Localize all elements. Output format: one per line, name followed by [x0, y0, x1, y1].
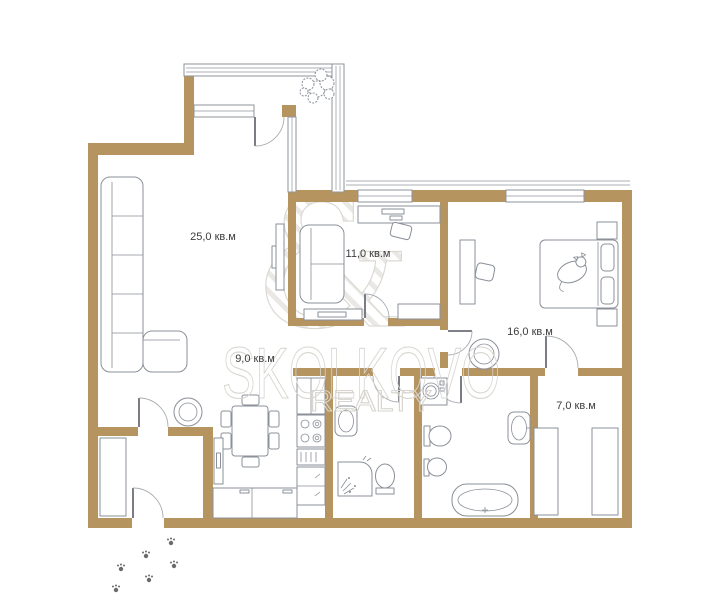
- desk-chair: [475, 262, 496, 281]
- hall-wardrobe: [100, 438, 126, 516]
- round-armchair: [174, 398, 202, 426]
- office-sofa: [300, 225, 344, 303]
- floor-plan-canvas: &: [0, 0, 720, 600]
- bedroom-area-label: 16,0 кв.м: [507, 326, 553, 338]
- wc-toilet: [376, 464, 395, 494]
- bathroom-toilet: [424, 426, 451, 446]
- watermark-division: REALTY: [310, 385, 432, 418]
- kitchen-radiator: [214, 438, 223, 484]
- bidet: [424, 458, 447, 476]
- dressing-room-area-label: 7,0 кв.м: [556, 400, 596, 412]
- hallway-furniture: [100, 438, 126, 516]
- stove: [297, 415, 325, 447]
- chair: [242, 457, 259, 467]
- bathtub: [452, 484, 518, 516]
- radiator: [398, 304, 440, 319]
- nightstand: [597, 222, 617, 239]
- fridge: [297, 467, 325, 505]
- chair: [269, 433, 279, 449]
- oven: [297, 449, 325, 465]
- kitchen-area-label: 9,0 кв.м: [235, 353, 275, 365]
- pillow: [601, 244, 614, 271]
- kitchen-counter: [213, 488, 297, 518]
- watermark: SKOLKOVO REALTY: [222, 334, 500, 418]
- living-room-area-label: 25,0 кв.м: [190, 231, 236, 243]
- floor-plan-drawing: &: [0, 0, 720, 600]
- nightstand: [597, 309, 617, 326]
- bed: [540, 240, 618, 308]
- wardrobe: [534, 428, 558, 515]
- pillow: [601, 277, 614, 304]
- tv-stand: [304, 309, 362, 320]
- office-area-label: 11,0 кв.м: [346, 248, 391, 260]
- bathroom-sink: [508, 412, 530, 444]
- wardrobe: [592, 428, 618, 515]
